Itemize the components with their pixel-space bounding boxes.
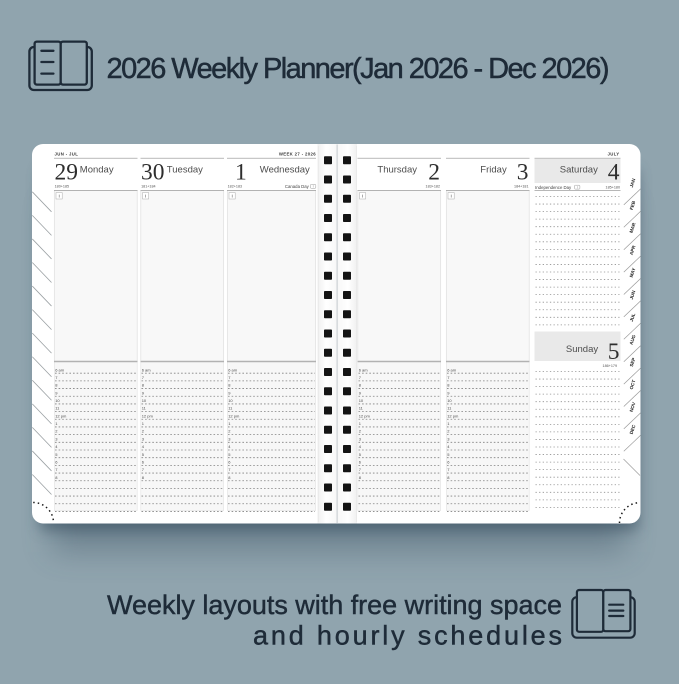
svg-text:Tuesday: Tuesday: [167, 164, 203, 175]
svg-text:186+179: 186+179: [603, 364, 617, 368]
svg-text:2026 Weekly Planner(Jan 2026 -: 2026 Weekly Planner(Jan 2026 - Dec 2026): [107, 53, 610, 85]
svg-text:i: i: [145, 194, 146, 199]
svg-text:i: i: [451, 194, 452, 199]
svg-text:183+182: 183+182: [426, 184, 440, 188]
svg-text:12 pm: 12 pm: [142, 413, 154, 418]
svg-text:6 am: 6 am: [359, 367, 369, 372]
svg-text:i: i: [362, 194, 363, 199]
svg-text:5: 5: [608, 339, 620, 365]
svg-text:6 am: 6 am: [228, 367, 238, 372]
svg-text:6 am: 6 am: [447, 367, 457, 372]
svg-text:Saturday: Saturday: [560, 164, 598, 175]
svg-text:6 am: 6 am: [142, 367, 152, 372]
svg-text:and hourly schedules: and hourly schedules: [253, 621, 562, 651]
svg-text:10: 10: [142, 398, 147, 403]
svg-text:12 pm: 12 pm: [228, 413, 240, 418]
svg-text:30: 30: [141, 160, 165, 186]
svg-text:184+181: 184+181: [514, 184, 528, 188]
svg-text:10: 10: [228, 398, 233, 403]
svg-text:Independence Day: Independence Day: [535, 185, 572, 190]
svg-text:Friday: Friday: [480, 164, 507, 175]
svg-text:i: i: [232, 194, 233, 199]
svg-text:Wednesday: Wednesday: [260, 164, 310, 175]
svg-text:181+184: 181+184: [141, 184, 155, 188]
svg-text:12 pm: 12 pm: [55, 413, 67, 418]
svg-text:JUN - JUL: JUN - JUL: [55, 152, 79, 157]
svg-text:29: 29: [55, 160, 79, 186]
svg-text:Weekly layouts with free writi: Weekly layouts with free writing space: [107, 590, 562, 620]
svg-text:JULY: JULY: [608, 152, 620, 157]
svg-text:WEEK 27 - 2026: WEEK 27 - 2026: [279, 152, 316, 157]
svg-text:Sunday: Sunday: [566, 344, 598, 355]
svg-text:12 pm: 12 pm: [359, 413, 371, 418]
svg-text:185+180: 185+180: [606, 185, 620, 189]
svg-text:Canada Day: Canada Day: [285, 184, 310, 189]
svg-text:2: 2: [428, 160, 440, 186]
svg-text:4: 4: [608, 160, 620, 186]
svg-text:10: 10: [359, 398, 364, 403]
svg-text:10: 10: [55, 398, 60, 403]
svg-text:182+183: 182+183: [228, 184, 242, 188]
svg-text:1: 1: [235, 160, 247, 186]
svg-text:6 am: 6 am: [55, 367, 65, 372]
svg-text:180+185: 180+185: [55, 184, 69, 188]
svg-text:3: 3: [517, 160, 529, 186]
svg-text:12 pm: 12 pm: [447, 413, 459, 418]
svg-text:i: i: [59, 194, 60, 199]
svg-text:10: 10: [447, 398, 452, 403]
svg-text:Monday: Monday: [80, 164, 114, 175]
svg-text:Thursday: Thursday: [377, 164, 417, 175]
